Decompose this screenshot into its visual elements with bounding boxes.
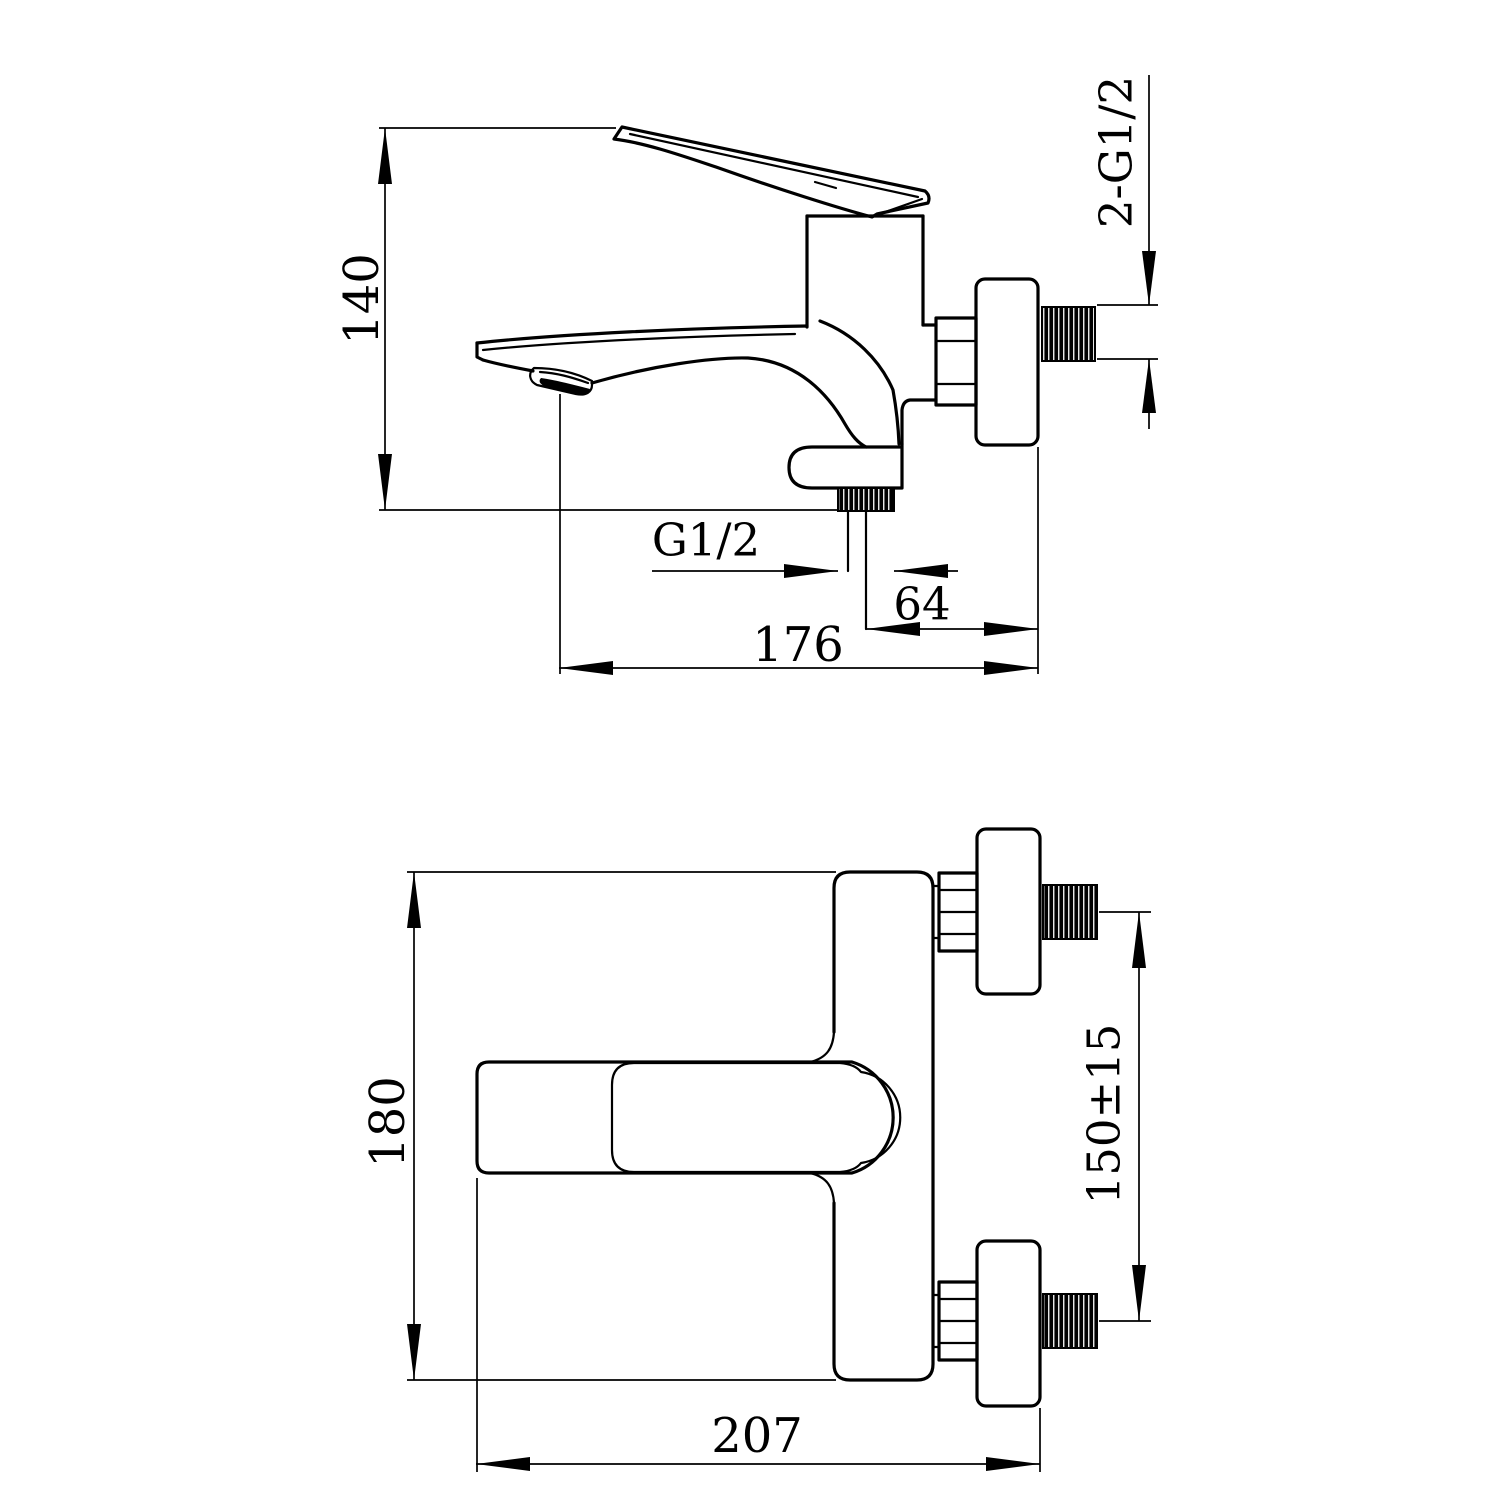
side-wall-thread-hatch bbox=[1042, 307, 1095, 361]
side-outlet-thread-hatch bbox=[838, 488, 894, 511]
dim-label-150: 150±15 bbox=[1078, 1024, 1131, 1205]
dim-label-g12: G1/2 bbox=[652, 514, 760, 567]
dim-label-180: 180 bbox=[360, 1076, 416, 1168]
dim-label-140: 140 bbox=[334, 253, 390, 345]
dim-label-2-g12: 2-G1/2 bbox=[1090, 76, 1143, 228]
dim-label-64: 64 bbox=[893, 578, 950, 631]
drawing-sheet: 140 2-G1/2 G1/2 64 bbox=[0, 0, 1500, 1500]
front-thread-bottom-hatch bbox=[1043, 1294, 1097, 1348]
dim-label-176: 176 bbox=[752, 617, 844, 673]
front-thread-top-hatch bbox=[1043, 885, 1097, 939]
paper-background bbox=[0, 0, 1500, 1500]
faucet-technical-drawing: 140 2-G1/2 G1/2 64 bbox=[0, 0, 1500, 1500]
dim-label-207: 207 bbox=[711, 1408, 803, 1464]
